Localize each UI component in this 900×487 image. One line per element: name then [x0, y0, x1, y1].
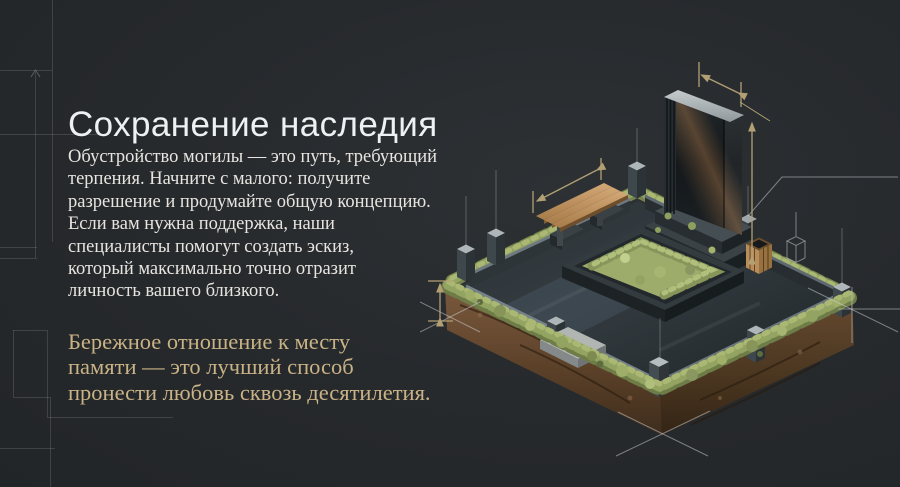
paragraph-line: Если вам нужна поддержка, наши: [68, 213, 468, 235]
fence-post: [487, 229, 505, 266]
fence-post: [457, 245, 475, 282]
paragraph-line: который максимально точно отразит: [68, 258, 468, 280]
memorial-plot-illustration: [420, 30, 900, 487]
paragraph-line: разрешение и продумайте общую концепцию.: [68, 191, 468, 213]
body-paragraph: Обустройство могилы — это путь, требующи…: [68, 146, 468, 303]
paragraph-line: личность вашего близкого.: [68, 280, 468, 302]
slide-canvas: Сохранение наследия Обустройство могилы …: [0, 0, 900, 487]
dimension-stele-width: [699, 62, 741, 107]
wooden-planter: [746, 238, 772, 275]
paragraph-line: Обустройство могилы — это путь, требующи…: [68, 146, 468, 168]
ghost-post-wireframe: [787, 212, 805, 263]
leader-line: [748, 177, 898, 216]
fence-post: [628, 162, 646, 199]
paragraph-line: специалисты помогут создать эскиз,: [68, 236, 468, 258]
paragraph-line: терпения. Начните с малого: получите: [68, 168, 468, 190]
